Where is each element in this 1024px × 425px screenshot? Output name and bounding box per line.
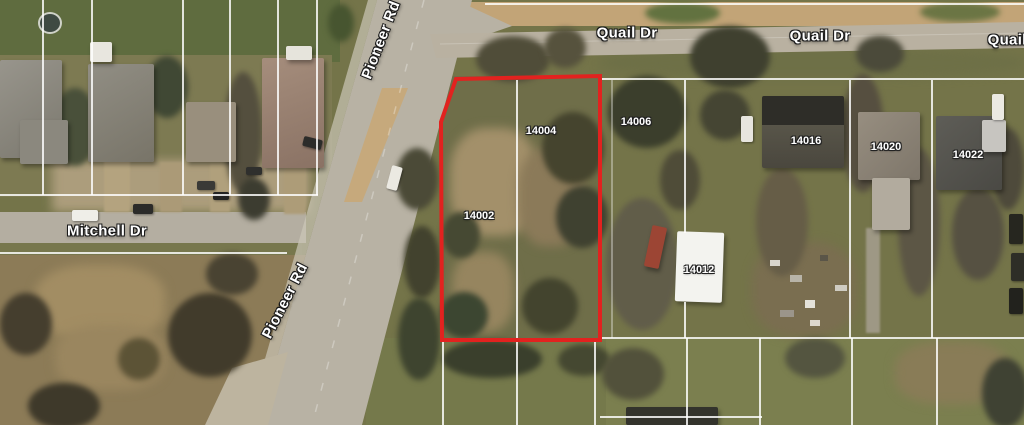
parcel-label-14004: 14004 bbox=[526, 125, 557, 137]
road-label-mitchell-dr: Mitchell Dr bbox=[67, 223, 147, 240]
parcel-label-14006: 14006 bbox=[621, 116, 652, 128]
parcel-label-14020: 14020 bbox=[871, 141, 902, 153]
road-label-quail-dr-3: Quail Dr bbox=[988, 32, 1024, 49]
parcel-label-14002: 14002 bbox=[464, 210, 495, 222]
parcel-label-14012: 14012 bbox=[684, 264, 715, 276]
parcel-label-14022: 14022 bbox=[953, 149, 984, 161]
parcel-lines-layer bbox=[0, 0, 1024, 425]
satellite-map: Pioneer Rd Pioneer Rd Quail Dr Quail Dr … bbox=[0, 0, 1024, 425]
parcel-label-14016: 14016 bbox=[791, 135, 822, 147]
road-label-quail-dr-2: Quail Dr bbox=[790, 28, 851, 45]
red-property-outline bbox=[441, 76, 600, 340]
road-label-quail-dr-1: Quail Dr bbox=[597, 25, 658, 42]
